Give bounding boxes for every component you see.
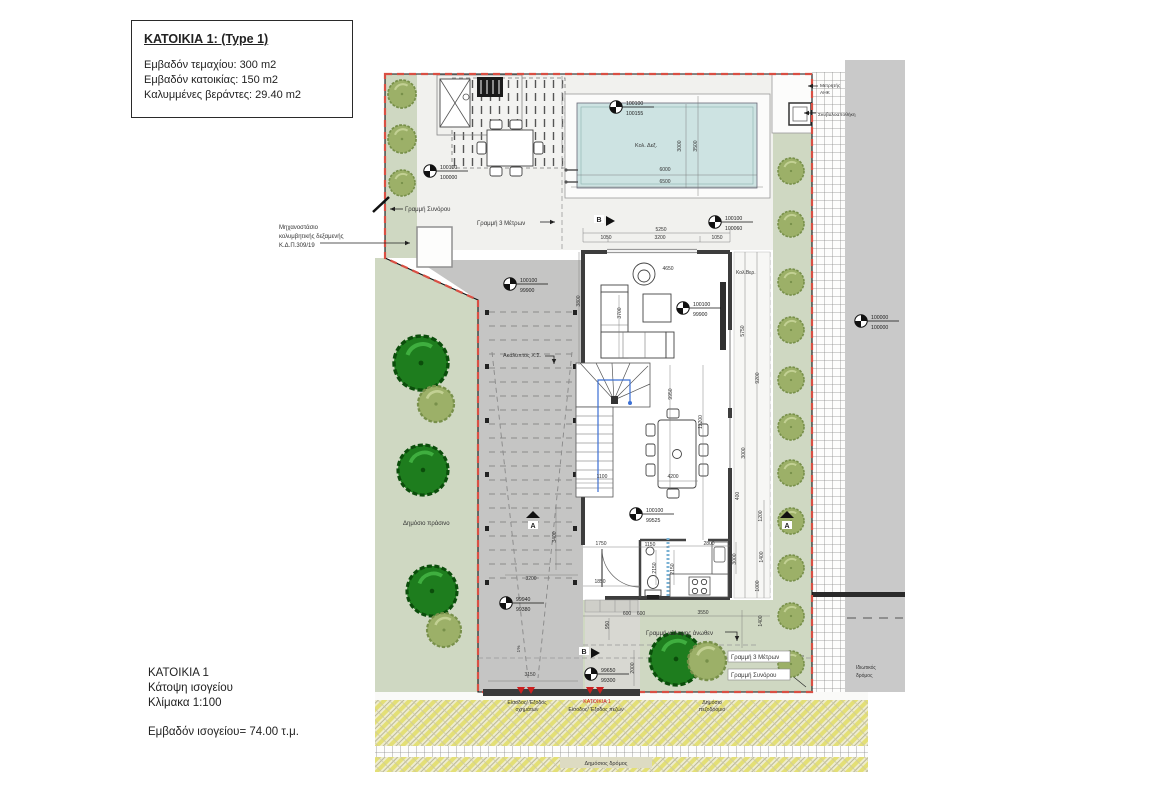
meter-niche <box>772 74 812 133</box>
tree-icon <box>407 566 457 616</box>
east-sidewalk-tiles <box>812 72 845 692</box>
label-public-sidewalk-line2: πεζοδρόμιο <box>699 706 726 713</box>
label-coverage-line: Γραμμή κάλυψης άνωθεν <box>646 630 713 637</box>
coffee-table <box>643 294 671 322</box>
dim-label: 950 <box>605 621 611 630</box>
bush-icon <box>388 125 416 153</box>
bush-icon <box>778 460 804 486</box>
label-vehicle-entrance-line2: οχημάτων <box>516 706 539 713</box>
site-plan-drawing: 1001001000001001001001551001001000601001… <box>0 0 1170 785</box>
bush-icon <box>778 603 804 629</box>
stove <box>689 577 710 595</box>
dining-chair <box>699 444 708 456</box>
dim-label: 6000 <box>659 167 670 173</box>
level-bottom-value: 99380 <box>516 607 531 613</box>
house <box>576 250 770 613</box>
label-pedestrian-entrance: Είσοδος/ Έξοδος πεζών <box>568 707 624 713</box>
bush-icon <box>388 80 416 108</box>
outdoor-table <box>487 130 533 166</box>
dining-chair <box>646 444 655 456</box>
label-pool: Κολ. Δεξ. <box>635 143 658 149</box>
carport-post <box>573 580 577 585</box>
level-top-value: 100100 <box>520 278 537 284</box>
washbasin <box>646 547 654 555</box>
dim-label: 4200 <box>667 474 678 480</box>
level-bottom-value: 100000 <box>440 175 457 181</box>
bush-icon <box>418 386 454 422</box>
outdoor-chair <box>510 120 522 129</box>
garbage-store-box <box>789 103 811 125</box>
label-3m-line-south: Γραμμή 3 Μέτρων <box>731 654 779 661</box>
dim-label: 5750 <box>740 325 746 336</box>
section-letter: A <box>784 523 789 530</box>
section-letter: B <box>596 217 601 224</box>
level-top-value: 100100 <box>725 216 742 222</box>
label-private-road-line2: δρόμος <box>856 672 873 679</box>
dim-label: 3500 <box>693 140 699 151</box>
carport-post <box>485 310 489 315</box>
outdoor-chair <box>490 120 502 129</box>
kitchen-sink <box>714 547 725 562</box>
bush-icon <box>778 555 804 581</box>
outdoor-chair <box>510 167 522 176</box>
dim-label: 400 <box>735 492 741 501</box>
carport-post <box>485 418 489 423</box>
bush-icon <box>778 269 804 295</box>
carport-post <box>485 580 489 585</box>
drawing-sheet: ΚΑΤΟΙΚΙΑ 1: (Type 1) Εμβαδόν τεμαχίου: 3… <box>0 0 1170 785</box>
level-bottom-value: 100060 <box>725 226 742 232</box>
carport-post <box>573 310 577 315</box>
pool-ladder-post <box>564 168 567 171</box>
bush-icon <box>688 642 726 680</box>
label-pump-room-line3: Κ.Δ.Π.309/19 <box>279 243 315 249</box>
dim-label: 3400 <box>552 531 558 542</box>
road-edge-band <box>812 592 905 597</box>
tree-icon <box>398 445 448 495</box>
outdoor-chair <box>477 142 486 154</box>
covered-veranda-floor <box>734 252 770 598</box>
table-centerpiece <box>673 450 682 459</box>
dim-label: 5250 <box>655 227 666 233</box>
carport-post <box>485 472 489 477</box>
dining-chair <box>699 464 708 476</box>
level-bottom-value: 100155 <box>626 111 643 117</box>
level-bottom-value: 99900 <box>693 312 708 318</box>
dim-label: 3800 <box>576 295 582 306</box>
dining-chair <box>646 424 655 436</box>
bush-icon <box>389 170 415 196</box>
label-house-entrance-title: ΚΑΤΟΙΚΙΑ 1 <box>583 699 611 705</box>
carport-post <box>485 364 489 369</box>
dim-label: 1050 <box>600 235 611 241</box>
label-pump-room-line2: κολυμβητικής δεξαμενής <box>279 233 344 240</box>
east-green-strip <box>773 95 812 692</box>
stair-post <box>611 396 618 404</box>
label-boundary-line-south: Γραμμή Συνόρου <box>731 672 776 679</box>
dim-label: 2150 <box>652 562 658 573</box>
level-bottom-value: 99300 <box>601 678 616 684</box>
dim-label: 1850 <box>594 579 605 585</box>
label-uncovered-parking: Ακάλυπτος Χ.Σ. <box>503 352 542 359</box>
level-top-value: 100100 <box>693 302 710 308</box>
bush-icon <box>427 613 461 647</box>
label-ahk-meter-line2: ΑΗΚ <box>820 90 831 96</box>
level-top-value: 99650 <box>601 668 616 674</box>
label-ahk-meter-line1: Μετρητής <box>820 82 841 89</box>
dim-label: 4650 <box>662 266 673 272</box>
dim-label: 9950 <box>668 388 674 399</box>
label-covered-veranda: Κολ.Βερ. <box>736 270 756 276</box>
dim-label: 3550 <box>697 610 708 616</box>
level-top-value: 100100 <box>646 508 663 514</box>
label-public-green: Δημόσιο πράσινο <box>403 520 450 527</box>
bush-icon <box>778 211 804 237</box>
level-bottom-value: 99900 <box>520 288 535 294</box>
private-road-area <box>845 60 905 692</box>
carport-post <box>485 526 489 531</box>
dim-label: 1750 <box>595 541 606 547</box>
level-bottom-value: 100000 <box>871 325 888 331</box>
dim-label: 1200 <box>758 510 764 521</box>
label-public-road: Δημόσιος δρόμος <box>585 760 628 767</box>
dim-label: 3000 <box>732 553 738 564</box>
dim-label: 3200 <box>525 576 536 582</box>
outdoor-chair <box>490 167 502 176</box>
dining-chair <box>667 489 679 498</box>
label-boundary-line-top: Γραμμή Συνόρου <box>405 206 450 213</box>
dim-label: 1150 <box>645 542 656 548</box>
dim-label: 3150 <box>524 672 535 678</box>
carport-post <box>573 526 577 531</box>
pool-water <box>577 103 757 188</box>
level-bottom-value: 99525 <box>646 518 661 524</box>
label-garbage-store: Σκυβαλοαποθήκη <box>818 111 856 118</box>
dim-label: 2800 <box>703 541 714 547</box>
level-top-value: 100100 <box>626 101 643 107</box>
dim-label: 600 <box>637 611 646 617</box>
bush-icon <box>778 158 804 184</box>
level-top-value: 100100 <box>440 165 457 171</box>
dim-label: 3000 <box>741 447 747 458</box>
dining-chair <box>646 464 655 476</box>
level-top-value: 99940 <box>516 597 531 603</box>
label-ramp-slope: 1% <box>516 645 522 653</box>
outdoor-chair <box>534 142 543 154</box>
dim-label: 1400 <box>759 551 765 562</box>
dining-chair <box>667 409 679 418</box>
pool-pump-room <box>417 227 452 267</box>
dim-label: 1000 <box>755 580 761 591</box>
dim-label: 9200 <box>755 372 761 383</box>
label-vehicle-entrance-line1: Είσοδος/ Έξοδος <box>507 700 547 706</box>
dim-label: 2000 <box>630 662 636 673</box>
bush-icon <box>778 317 804 343</box>
dim-label: 600 <box>623 611 632 617</box>
label-3m-line-top: Γραμμή 3 Μέτρων <box>477 220 525 227</box>
label-public-sidewalk-line1: Δημόσιο <box>702 699 722 706</box>
sofa-section <box>601 332 666 358</box>
bush-icon <box>778 414 804 440</box>
dim-label: 1100 <box>597 474 608 480</box>
tv-unit <box>720 282 726 350</box>
dim-label: 3000 <box>677 140 683 151</box>
section-letter: B <box>581 649 586 656</box>
dim-label: 6500 <box>659 179 670 185</box>
dim-label: 12200 <box>698 415 704 429</box>
dim-label: 1050 <box>711 235 722 241</box>
section-letter: A <box>530 523 535 530</box>
label-private-road-line1: Ιδιωτικός <box>856 664 876 671</box>
label-pump-room-line1: Μηχανοστάσιο <box>279 224 319 231</box>
toilet <box>648 576 659 589</box>
stair-route-end <box>628 401 632 405</box>
dim-label: 1400 <box>758 615 764 626</box>
tree-icon <box>394 336 448 390</box>
pool-ladder-post <box>564 180 567 183</box>
dim-label: 3700 <box>617 307 623 318</box>
entrance-curb <box>483 689 640 696</box>
dim-label: 3200 <box>654 235 665 241</box>
level-top-value: 100000 <box>871 315 888 321</box>
armchair-seat <box>638 270 650 282</box>
dim-label: 2150 <box>670 563 676 574</box>
toilet-base <box>647 595 659 599</box>
public-road-paving-strip <box>375 746 868 757</box>
sofa-armrest <box>666 332 674 358</box>
bush-icon <box>778 367 804 393</box>
